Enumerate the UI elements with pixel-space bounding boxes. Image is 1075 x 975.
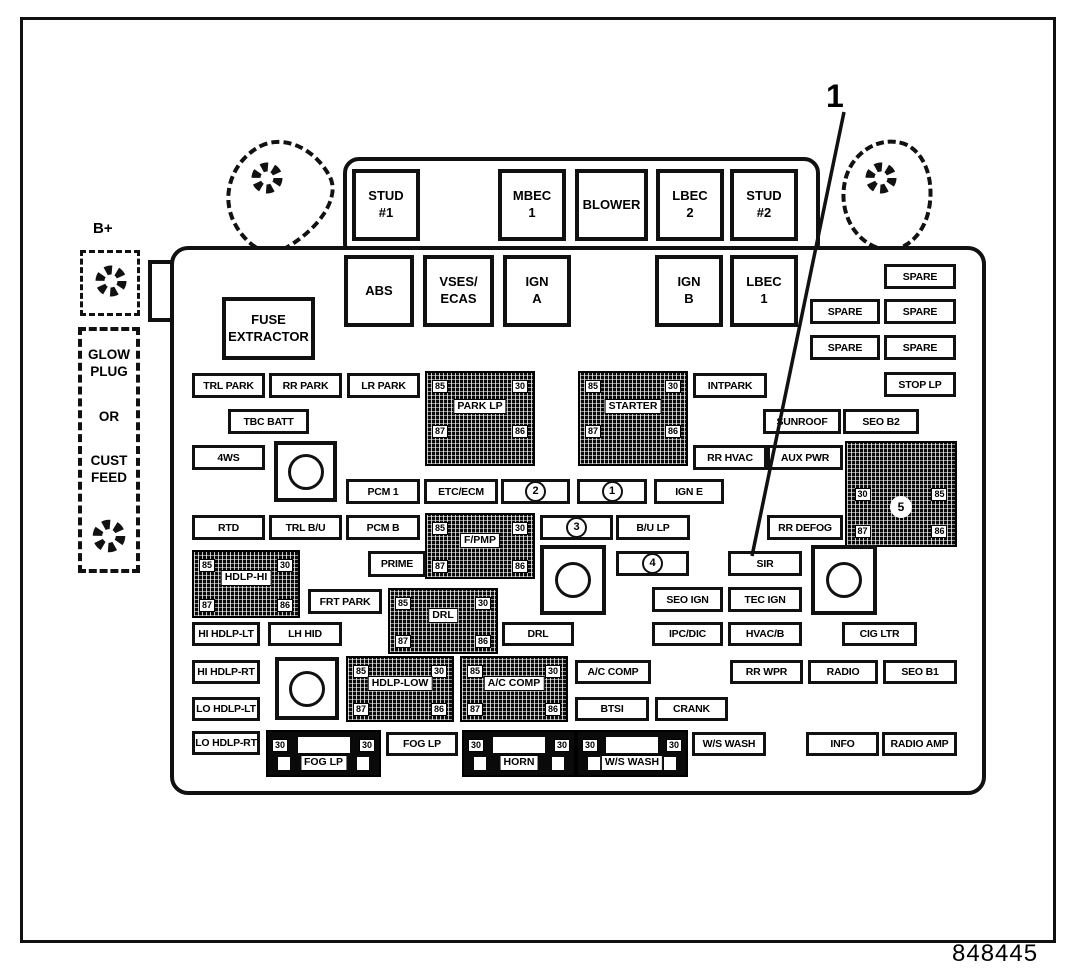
fuse-blower: BLOWER <box>575 169 648 241</box>
fuse-box-diagram: B+ GLOW PLUG OR CUST FEED STUD #1MBEC 1B… <box>0 0 1075 975</box>
numbered-fuse-4: 4 <box>616 551 689 576</box>
fuse-seo-ign: SEO IGN <box>652 587 723 612</box>
fuse-lo-hdlp-rt: LO HDLP-RT <box>192 731 260 755</box>
maxi-pin-number: 30 <box>359 739 375 752</box>
relay-f-pmp: 85308786F/PMP <box>425 513 535 579</box>
fuse-rr-wpr: RR WPR <box>730 660 803 684</box>
relay-pin-number: 30 <box>512 522 528 535</box>
fuse-radio: RADIO <box>808 660 878 684</box>
relay-name: F/PMP <box>460 533 500 549</box>
fuse-ign-e: IGN E <box>654 479 724 504</box>
maxi-fuse-window <box>606 737 658 753</box>
fuse-rr-defog: RR DEFOG <box>767 515 843 540</box>
fuse-seo-b2: SEO B2 <box>843 409 919 434</box>
relay-name: PARK LP <box>453 399 506 415</box>
mounting-bolt-icon <box>88 515 130 557</box>
or-label: OR <box>99 409 119 426</box>
maxi-terminal <box>664 757 676 770</box>
fuse-rtd: RTD <box>192 515 265 540</box>
fuse-ign-a: IGN A <box>503 255 571 327</box>
relay-pin-number: 87 <box>855 525 871 538</box>
fuse-spare: SPARE <box>810 335 880 360</box>
fuse-hvac-b: HVAC/B <box>728 622 802 646</box>
fuse-hi-hdlp-lt: HI HDLP-LT <box>192 622 260 646</box>
relay-socket-hole <box>289 671 325 707</box>
relay-pin-number: 87 <box>395 635 411 648</box>
maxi-fuse-name: FOG LP <box>300 755 347 771</box>
fuse-sunroof: SUNROOF <box>763 409 841 434</box>
maxi-fuse-w-s-wash: 3030W/S WASH <box>576 730 688 777</box>
fuse-vses-ecas: VSES/ ECAS <box>423 255 494 327</box>
fuse-aux-pwr: AUX PWR <box>767 445 843 470</box>
fuse-4ws: 4WS <box>192 445 265 470</box>
fuse-lbec-1: LBEC 1 <box>730 255 798 327</box>
relay-position-number: 5 <box>890 496 912 518</box>
fuse-pcm-b: PCM B <box>346 515 420 540</box>
relay-pin-number: 87 <box>585 425 601 438</box>
fuse-stud-1: STUD #1 <box>352 169 420 241</box>
relay-hdlp-hi: 85308786HDLP-HI <box>192 550 300 618</box>
fuse-spare: SPARE <box>810 299 880 324</box>
maxi-fuse-window <box>493 737 545 753</box>
relay-pin-number: 86 <box>512 560 528 573</box>
relay-name: HDLP-LOW <box>368 676 433 692</box>
relay-name: HDLP-HI <box>221 570 272 586</box>
fuse-etc-ecm: ETC/ECM <box>424 479 498 504</box>
relay-pin-number: 85 <box>199 559 215 572</box>
relay-name: STARTER <box>605 399 662 415</box>
relay-pin-number: 87 <box>432 425 448 438</box>
relay-pin-number: 85 <box>432 380 448 393</box>
fuse-number: 1 <box>602 481 623 502</box>
numbered-fuse-3: 3 <box>540 515 613 540</box>
maxi-terminal <box>357 757 369 770</box>
maxi-pin-number: 30 <box>554 739 570 752</box>
maxi-pin-number: 30 <box>272 739 288 752</box>
fuse-tec-ign: TEC IGN <box>728 587 802 612</box>
figure-number: 848445 <box>952 940 1038 968</box>
fuse-b-u-lp: B/U LP <box>616 515 690 540</box>
fuse-frt-park: FRT PARK <box>308 589 382 614</box>
fuse-lo-hdlp-lt: LO HDLP-LT <box>192 697 260 721</box>
fuse-mbec-1: MBEC 1 <box>498 169 566 241</box>
relay-pin-number: 85 <box>467 665 483 678</box>
relay-socket <box>274 441 337 502</box>
relay-pin-number: 30 <box>475 597 491 610</box>
fuse-spare: SPARE <box>884 299 956 324</box>
fuse-a-c-comp: A/C COMP <box>575 660 651 684</box>
relay-5: 308587865 <box>845 441 957 547</box>
maxi-pin-number: 30 <box>582 739 598 752</box>
relay-pin-number: 85 <box>353 665 369 678</box>
b-plus-terminal <box>80 250 140 316</box>
fuse-trl-park: TRL PARK <box>192 373 265 398</box>
maxi-terminal <box>552 757 564 770</box>
fuse-crank: CRANK <box>655 697 728 721</box>
cust-feed-label: CUST FEED <box>91 453 128 487</box>
fuse-stop-lp: STOP LP <box>884 372 956 397</box>
relay-socket-hole <box>555 562 591 598</box>
relay-socket <box>275 657 339 720</box>
relay-pin-number: 30 <box>277 559 293 572</box>
fuse-lr-park: LR PARK <box>347 373 420 398</box>
fuse-ign-b: IGN B <box>655 255 723 327</box>
relay-pin-number: 86 <box>545 703 561 716</box>
fuse-drl: DRL <box>502 622 574 646</box>
fuse-prime: PRIME <box>368 551 426 577</box>
relay-socket <box>540 545 606 615</box>
relay-a-c-comp: 85308786A/C COMP <box>460 656 568 722</box>
fuse-ipc-dic: IPC/DIC <box>652 622 723 646</box>
fuse-hi-hdlp-rt: HI HDLP-RT <box>192 660 260 684</box>
fuse-abs: ABS <box>344 255 414 327</box>
relay-pin-number: 30 <box>665 380 681 393</box>
fuse-cig-ltr: CIG LTR <box>842 622 917 646</box>
maxi-fuse-window <box>298 737 350 753</box>
fuse-lbec-2: LBEC 2 <box>656 169 724 241</box>
relay-pin-number: 85 <box>395 597 411 610</box>
relay-pin-number: 85 <box>931 488 947 501</box>
maxi-terminal <box>588 757 600 770</box>
relay-pin-number: 86 <box>431 703 447 716</box>
maxi-pin-number: 30 <box>468 739 484 752</box>
fuse-pcm-1: PCM 1 <box>346 479 420 504</box>
relay-socket-hole <box>826 562 862 598</box>
relay-pin-number: 86 <box>931 525 947 538</box>
fuse-number: 4 <box>642 553 663 574</box>
relay-pin-number: 87 <box>467 703 483 716</box>
fuse-tbc-batt: TBC BATT <box>228 409 309 434</box>
relay-name: DRL <box>428 608 458 624</box>
relay-pin-number: 30 <box>512 380 528 393</box>
maxi-fuse-fog-lp: 3030FOG LP <box>266 730 381 777</box>
fuse-seo-b1: SEO B1 <box>883 660 957 684</box>
maxi-terminal <box>474 757 486 770</box>
relay-pin-number: 30 <box>855 488 871 501</box>
relay-pin-number: 87 <box>432 560 448 573</box>
fuse-info: INFO <box>806 732 879 756</box>
fuse-lh-hid: LH HID <box>268 622 342 646</box>
fuse-fog-lp: FOG LP <box>386 732 458 756</box>
callout-label: 1 <box>826 78 844 115</box>
relay-pin-number: 30 <box>431 665 447 678</box>
relay-pin-number: 87 <box>353 703 369 716</box>
fuse-trl-b-u: TRL B/U <box>269 515 342 540</box>
maxi-fuse-name: HORN <box>500 755 539 771</box>
relay-pin-number: 87 <box>199 599 215 612</box>
relay-park-lp: 85308786PARK LP <box>425 371 535 466</box>
fuse-sir: SIR <box>728 551 802 576</box>
relay-pin-number: 86 <box>512 425 528 438</box>
glow-plug-cust-feed-terminal: GLOW PLUG OR CUST FEED <box>78 327 140 573</box>
b-plus-label: B+ <box>93 220 113 237</box>
relay-socket <box>811 545 877 615</box>
relay-pin-number: 30 <box>545 665 561 678</box>
fuse-spare: SPARE <box>884 335 956 360</box>
fuse-intpark: INTPARK <box>693 373 767 398</box>
fuse-spare: SPARE <box>884 264 956 289</box>
fuse-btsi: BTSI <box>575 697 649 721</box>
fuse-radio-amp: RADIO AMP <box>882 732 957 756</box>
fuse-rr-hvac: RR HVAC <box>693 445 767 470</box>
relay-pin-number: 86 <box>665 425 681 438</box>
relay-starter: 85308786STARTER <box>578 371 688 466</box>
maxi-pin-number: 30 <box>666 739 682 752</box>
fuse-w-s-wash: W/S WASH <box>692 732 766 756</box>
fuse-number: 2 <box>525 481 546 502</box>
relay-hdlp-low: 85308786HDLP-LOW <box>346 656 454 722</box>
fuse-rr-park: RR PARK <box>269 373 342 398</box>
relay-name: A/C COMP <box>484 676 545 692</box>
mounting-bolt-icon <box>91 261 131 301</box>
relay-socket-hole <box>288 454 324 490</box>
numbered-fuse-1: 1 <box>577 479 647 504</box>
relay-pin-number: 85 <box>432 522 448 535</box>
fuse-number: 3 <box>566 517 587 538</box>
fuse-stud-2: STUD #2 <box>730 169 798 241</box>
maxi-fuse-name: W/S WASH <box>601 755 663 771</box>
fuse-fuse-extractor: FUSE EXTRACTOR <box>222 297 315 360</box>
numbered-fuse-2: 2 <box>501 479 570 504</box>
maxi-fuse-horn: 3030HORN <box>462 730 576 777</box>
relay-pin-number: 86 <box>277 599 293 612</box>
glow-plug-label: GLOW PLUG <box>88 347 130 381</box>
relay-drl: 85308786DRL <box>388 588 498 654</box>
relay-pin-number: 85 <box>585 380 601 393</box>
maxi-terminal <box>278 757 290 770</box>
relay-pin-number: 86 <box>475 635 491 648</box>
